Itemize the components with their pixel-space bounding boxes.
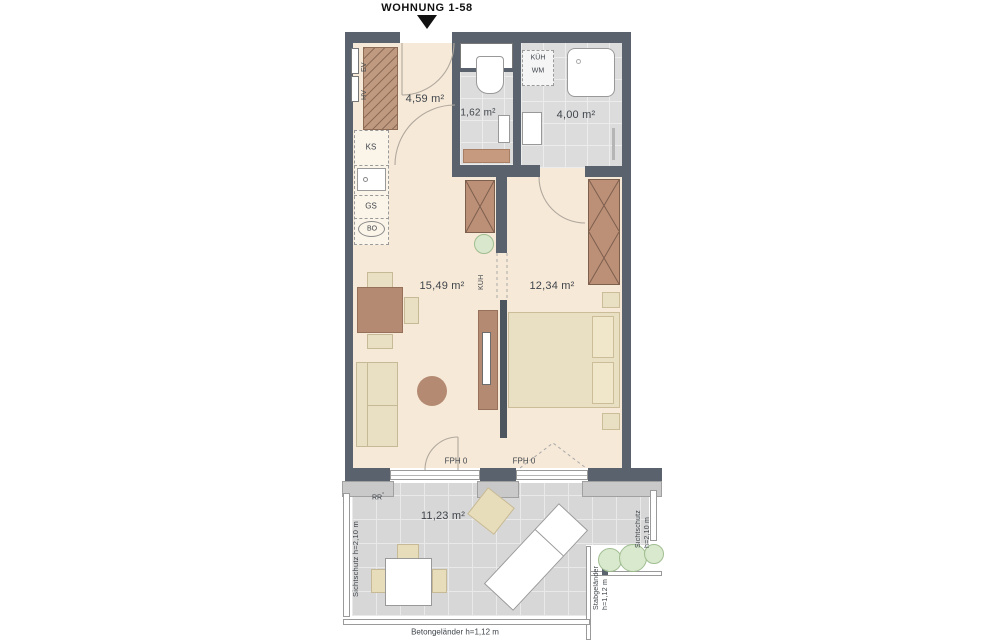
pillow	[592, 362, 614, 404]
rr-degree-icon: °	[382, 492, 384, 498]
hall-area-label: 4,59 m²	[406, 93, 445, 105]
wall-stub-living-bedroom	[496, 177, 507, 253]
wall-bottom-right	[588, 468, 662, 481]
entrance-arrow-icon	[417, 15, 437, 29]
wall-under-bath	[585, 166, 630, 177]
wall-bottom-left	[345, 468, 390, 481]
terrace-table	[385, 558, 432, 606]
wall-wc-bath	[513, 43, 521, 168]
tv	[482, 332, 491, 385]
wall-right	[622, 32, 631, 480]
floorplan-canvas: WOHNUNG 1-58	[0, 0, 1000, 641]
hall-wardrobe	[363, 47, 398, 130]
kitchen-separator	[354, 195, 389, 196]
wall-top-right	[452, 32, 630, 43]
hv-cabinet	[351, 76, 359, 102]
fridge-label: KS	[366, 143, 377, 152]
shower	[567, 48, 615, 97]
wc-area-label: 1,62 m²	[460, 108, 495, 119]
privacy-screen-left-label: Sichtschutz h=2,10 m	[351, 513, 360, 597]
bath-area-label: 4,00 m²	[557, 109, 596, 121]
sliding-door-living-bedroom	[500, 300, 507, 438]
privacy-screen-right	[650, 490, 657, 541]
terrace-chair	[397, 544, 419, 559]
passage-label: KÜH	[478, 258, 485, 290]
indoor-plant	[474, 234, 494, 254]
kitchen-separator	[354, 165, 389, 166]
faucet-icon	[363, 177, 368, 182]
wc-washbasin	[498, 115, 510, 143]
privacy-screen-right-label-2: h=2,10 m	[644, 492, 651, 548]
terrace-window	[516, 470, 588, 480]
bedroom-wardrobe	[588, 179, 620, 285]
terrace-area-label: 11,23 m²	[421, 510, 465, 522]
ev-label: EV	[361, 48, 368, 72]
hv-label: HV	[361, 76, 368, 100]
sofa	[356, 362, 398, 447]
pillow	[592, 316, 614, 358]
apartment-title: WOHNUNG 1-58	[381, 2, 473, 14]
concrete-railing-label: Betongeländer h=1,12 m	[411, 628, 499, 637]
wall-under-wc	[452, 165, 540, 177]
rod-railing-horizontal	[590, 571, 662, 576]
round-rug	[417, 376, 447, 406]
bush	[619, 544, 647, 572]
rr-label: RR°	[372, 492, 384, 501]
dining-table	[357, 287, 403, 333]
terrace-chair	[371, 569, 386, 593]
living-area-label: 15,49 m²	[419, 280, 464, 292]
terrace-chair	[432, 569, 447, 593]
ev-cabinet	[351, 48, 359, 74]
wall-top-left	[345, 32, 400, 43]
fph-label-left: FPH 0	[445, 457, 468, 466]
wc-sliding-door	[463, 149, 510, 163]
rod-railing-label-1: Stabgeländer	[593, 550, 600, 610]
oven-label: BO	[367, 226, 377, 233]
nightstand	[602, 292, 620, 308]
kitchen-sink	[357, 168, 386, 191]
dining-chair	[367, 272, 393, 288]
nightstand	[602, 413, 620, 430]
dining-chair	[404, 297, 419, 324]
towel-radiator	[612, 128, 615, 160]
bedroom-area-label: 12,34 m²	[529, 280, 574, 292]
rod-railing-vertical	[586, 546, 591, 640]
bath-washbasin	[522, 112, 542, 145]
shower-drain-icon	[576, 59, 581, 64]
rod-railing-label-2: h=1,12 m	[602, 550, 609, 610]
washer-label: WM	[532, 68, 544, 75]
toilet	[476, 56, 504, 94]
wall-hall-wc	[452, 43, 460, 165]
kitchen-separator	[354, 218, 389, 219]
dishwasher-label: GS	[365, 202, 377, 211]
privacy-screen-right-label-1: Sichtschutz	[635, 492, 642, 548]
concrete-railing-bottom	[343, 619, 590, 625]
wall-bottom-middle	[480, 468, 516, 481]
privacy-screen-left	[343, 493, 350, 617]
dryer-label: KÜH	[531, 55, 546, 62]
dining-chair	[367, 334, 393, 349]
terrace-door-glazing	[390, 470, 480, 480]
living-wardrobe	[465, 180, 495, 233]
fph-label-right: FPH 0	[513, 457, 536, 466]
